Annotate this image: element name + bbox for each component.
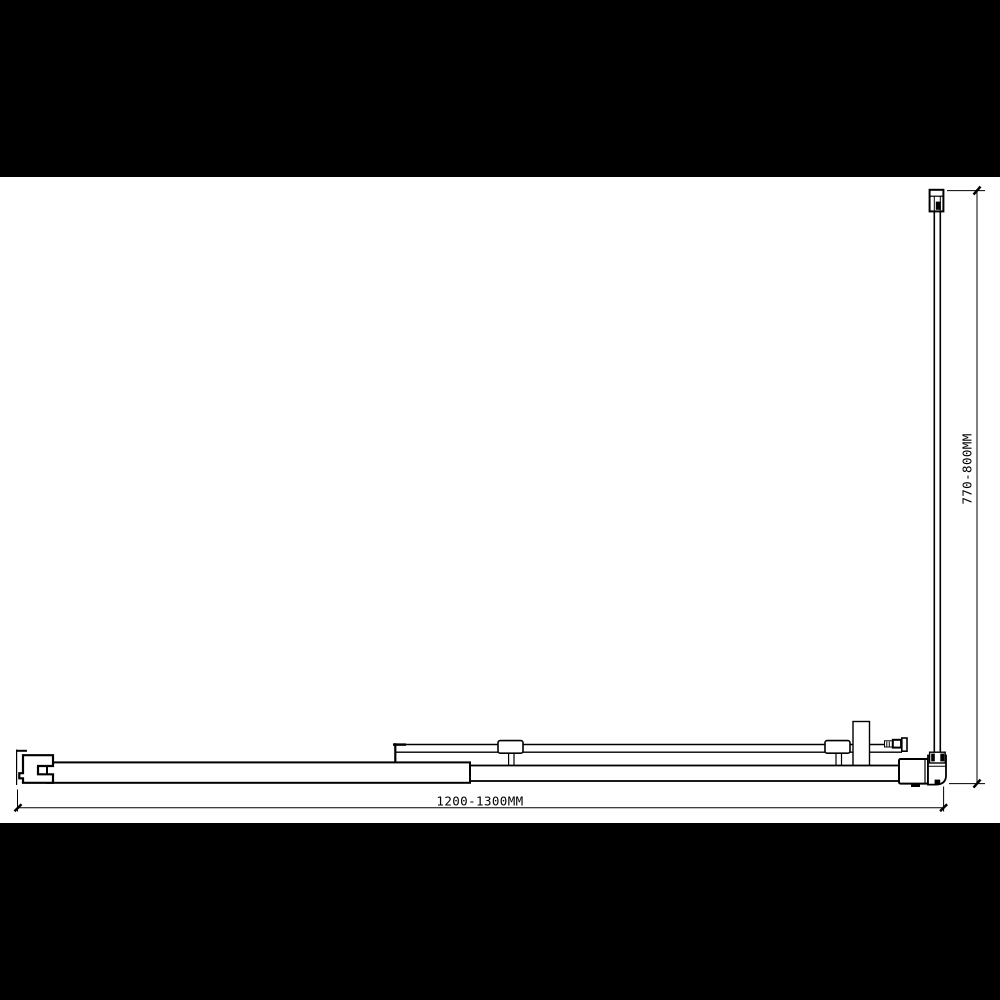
- fixed-panel-bar: [470, 766, 902, 782]
- sliding-door-bar: [47, 762, 470, 782]
- corner-block-foot: [911, 784, 920, 787]
- letterbox-bottom: [0, 823, 1000, 1000]
- end-fitting-body: [893, 740, 901, 748]
- screenshot-stage: 770-800MM 1200-1300MM: [0, 0, 1000, 1000]
- wall-bracket-clamp-pad: [936, 202, 941, 210]
- glass-clamp-pad: [931, 754, 935, 762]
- glass-clamp-pad: [940, 754, 944, 762]
- letterbox-top: [0, 0, 1000, 177]
- depth-dimension-label: 770-800MM: [960, 433, 975, 504]
- door-handle-block: [853, 722, 870, 767]
- corner-pivot-screw: [935, 780, 941, 784]
- width-dimension-label: 1200-1300MM: [436, 794, 523, 809]
- wall-bracket-top: [930, 190, 944, 212]
- corner-block: [899, 759, 928, 784]
- corner-pivot: [928, 752, 946, 784]
- clip-cap: [825, 741, 850, 754]
- end-fitting-sleeve: [885, 741, 893, 747]
- corner-assembly: [899, 759, 928, 787]
- technical-drawing: 770-800MM 1200-1300MM: [0, 0, 1000, 1000]
- drawing-canvas: [0, 177, 1000, 823]
- end-fitting-plate: [902, 738, 907, 751]
- clip-cap: [498, 741, 523, 754]
